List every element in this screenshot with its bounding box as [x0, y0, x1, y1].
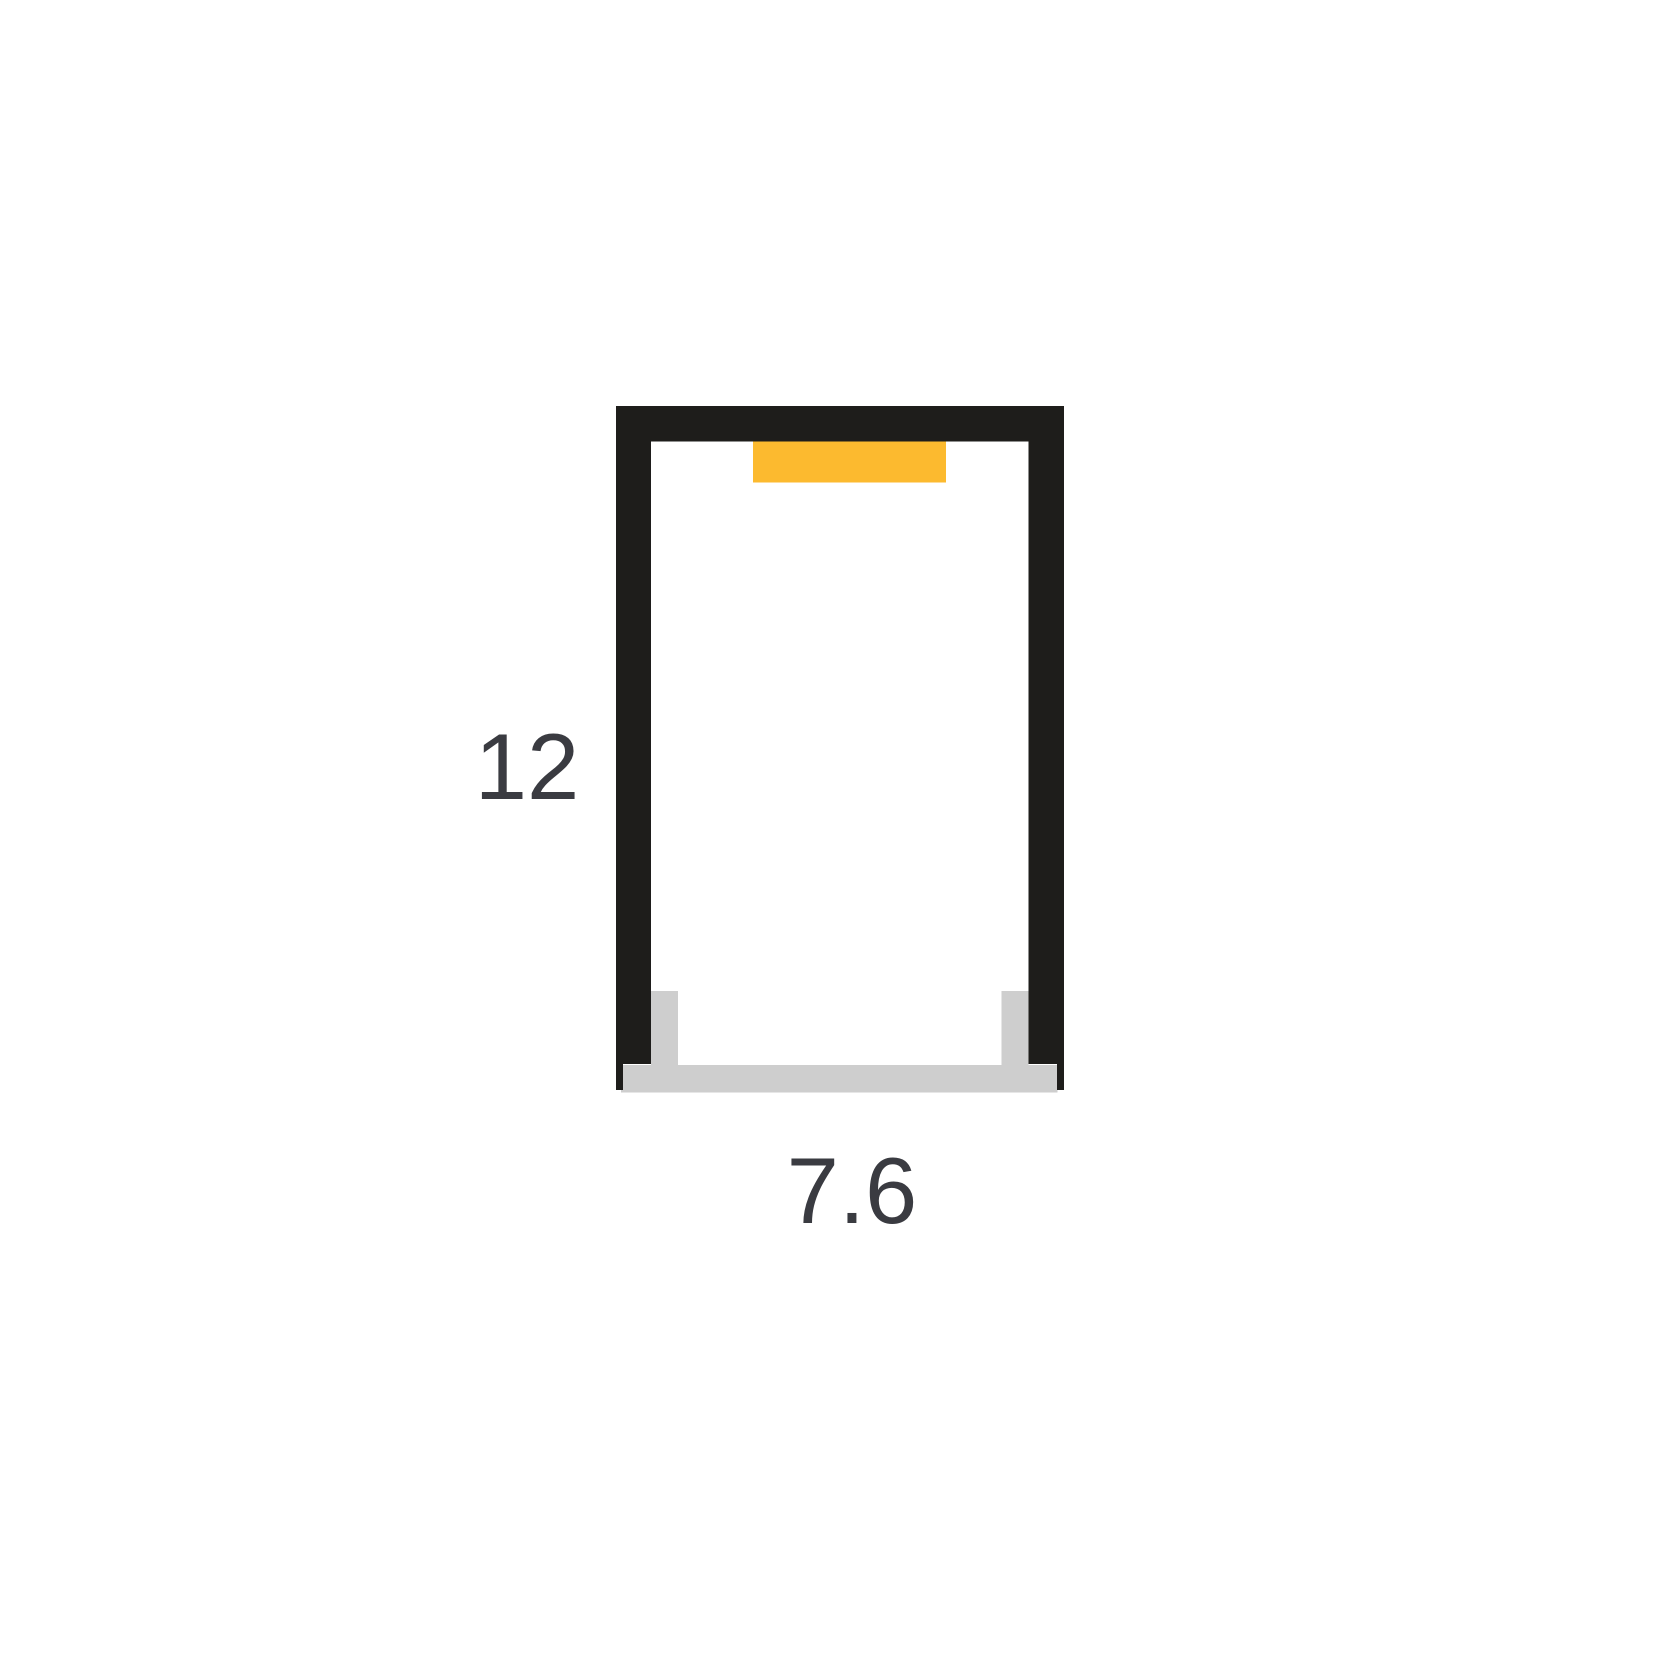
svg-text:12: 12: [475, 714, 580, 819]
svg-text:7.6: 7.6: [787, 1138, 918, 1243]
